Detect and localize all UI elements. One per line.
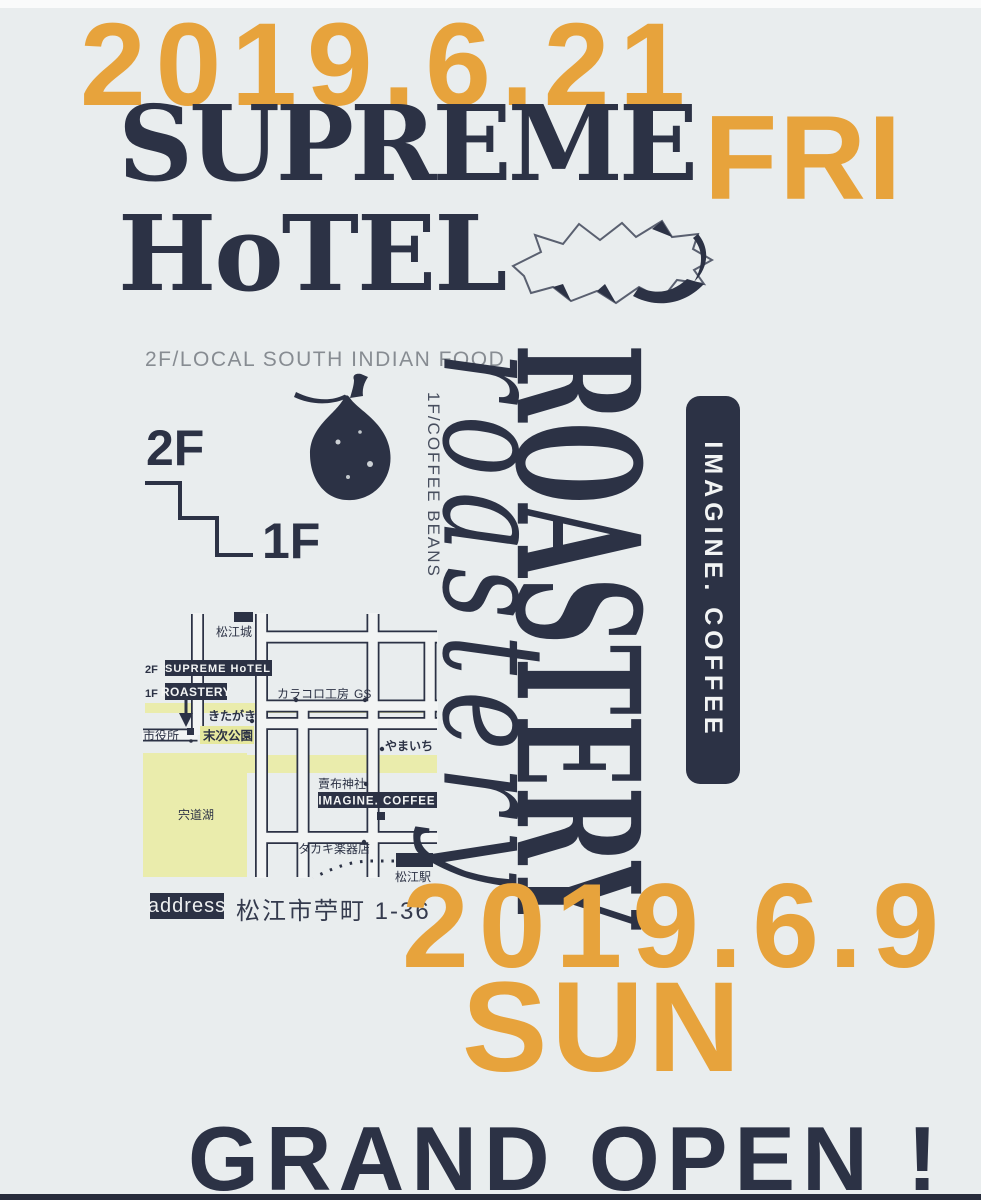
map-kitagaki-label: きたがき — [208, 708, 256, 723]
bottom-edge-strip — [0, 1194, 981, 1200]
map-roastery-box-label: ROASTERY — [161, 685, 231, 699]
map-imagine-marker — [377, 812, 385, 820]
map-karakoro-label: カラコロ工房 — [277, 686, 349, 701]
imagine-coffee-badge-text: IMAGINE. COFFEE — [686, 396, 740, 784]
map-hotel-box-label: SUPREME HoTEL — [165, 663, 271, 675]
floor-1f-label: 1F — [262, 516, 320, 566]
map-park-label: 末次公園 — [202, 728, 253, 743]
stairs-icon — [140, 478, 260, 560]
address-label: address — [150, 893, 224, 919]
map-2f-label: 2F — [145, 664, 158, 676]
day-bottom: SUN — [462, 964, 744, 1092]
poster-background: 2019.6.21 FRI SUPREME HoTEL 2F/LOCAL SOU… — [0, 0, 981, 1200]
map-cityhall-dot — [189, 739, 193, 743]
map-gs-label: GS — [354, 687, 371, 701]
coffee-fruit-icon — [288, 372, 423, 512]
floor-2f-label: 2F — [146, 423, 204, 473]
day-top: FRI — [704, 98, 903, 218]
grand-open-title: GRAND OPEN ! — [188, 1114, 944, 1200]
map-castle-marker — [234, 612, 253, 622]
top-edge-strip — [0, 0, 981, 8]
title-hotel: HoTEL — [118, 202, 505, 306]
map-takaki-label: タカキ楽器店 — [298, 842, 370, 856]
map-castle-label: 松江城 — [216, 625, 252, 639]
map-cityhall-marker — [187, 728, 194, 735]
map-shrine-label: 賣布神社 — [318, 776, 366, 791]
map-yamaichi-dot — [380, 747, 384, 751]
map-river-band — [247, 755, 437, 773]
imagine-coffee-badge: IMAGINE. COFFEE — [686, 396, 740, 784]
leaf-burst-icon — [505, 216, 720, 316]
roastery-title: ROASTERY — [491, 344, 660, 929]
map-lake-label: 宍道湖 — [178, 807, 214, 822]
title-supreme: SUPREME — [118, 92, 694, 196]
map-cityhall-label: 市役所 — [143, 728, 179, 743]
map-1f-label: 1F — [145, 688, 158, 700]
